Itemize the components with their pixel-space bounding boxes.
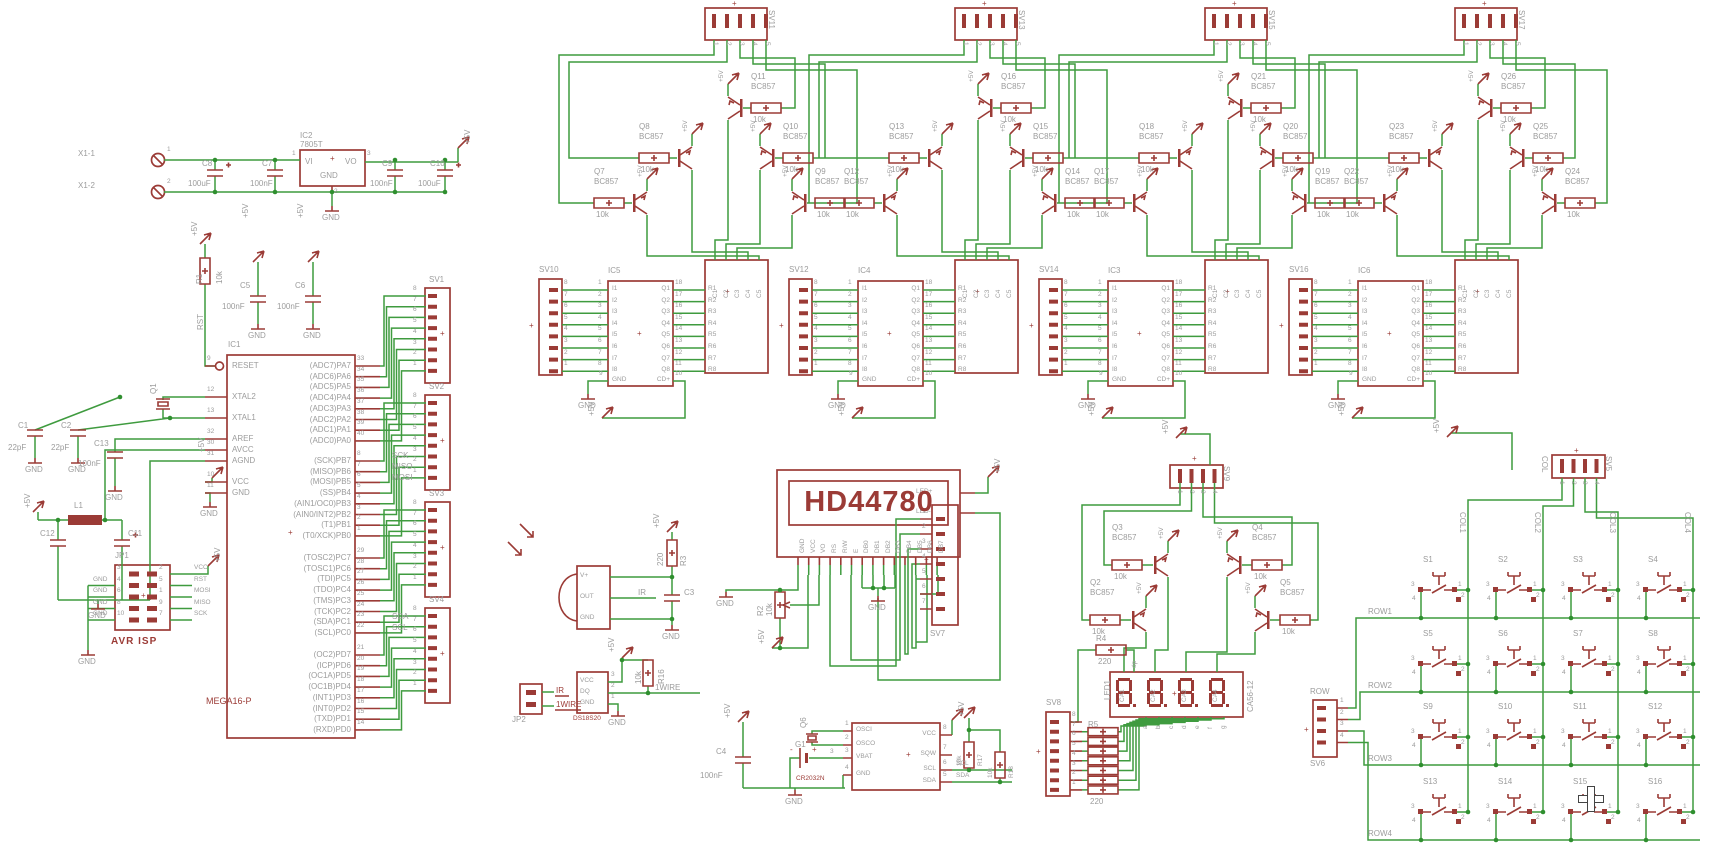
- label: R4: [958, 321, 966, 328]
- label: (TOSC1)PC6: [233, 565, 351, 573]
- label: 100nF: [700, 772, 723, 780]
- label: 10k: [1282, 628, 1295, 636]
- label: DB4: [907, 540, 914, 553]
- label: Q1: [1142, 286, 1170, 293]
- label: Q6: [1392, 344, 1420, 351]
- label: 3: [1561, 582, 1565, 589]
- label: Q5: [892, 332, 920, 339]
- label: 10k: [1317, 211, 1330, 219]
- label: GND: [580, 700, 594, 707]
- label: 4: [413, 436, 417, 443]
- label: BC857: [1280, 589, 1304, 597]
- label: DB7: [939, 540, 946, 553]
- label: 10k: [1114, 573, 1127, 581]
- label: 4: [598, 315, 602, 322]
- label: 3: [845, 748, 849, 755]
- label: 17: [675, 292, 682, 299]
- label: R8: [708, 367, 716, 374]
- label: I3: [612, 309, 617, 316]
- label: 15: [1175, 315, 1182, 322]
- label: GND: [1112, 377, 1126, 384]
- label: GND: [93, 611, 107, 618]
- label: I5: [1362, 332, 1367, 339]
- label: (OC1A)PD5: [233, 672, 351, 680]
- label: R3: [1208, 309, 1216, 316]
- row-net-label: ROW3: [1368, 755, 1392, 763]
- transistor-ref: Q18: [1139, 123, 1154, 131]
- label: 10k: [641, 166, 654, 174]
- label: 3: [1488, 42, 1495, 46]
- transistor-ref: Q24: [1565, 168, 1580, 176]
- label: +5V: [994, 459, 1002, 473]
- label: R3: [680, 556, 688, 566]
- label: 8: [117, 600, 121, 607]
- conn-label: SV3: [429, 490, 444, 498]
- label: BC857: [1252, 534, 1276, 542]
- label: +5V: [1246, 582, 1253, 594]
- label: +5V: [588, 402, 596, 416]
- ic2-value: 7805T: [300, 141, 323, 149]
- label: Q6: [1142, 344, 1170, 351]
- label: 1: [1683, 656, 1687, 663]
- label: 33: [357, 356, 364, 363]
- label: 5: [159, 577, 163, 584]
- label: +5V: [242, 204, 250, 218]
- label: (T0/XCK)PB0: [233, 532, 351, 540]
- label: I6: [612, 344, 617, 351]
- label: 10k: [891, 166, 904, 174]
- label: I8: [612, 367, 617, 374]
- label: MOSI: [392, 474, 412, 482]
- gnd-label: GND: [868, 604, 886, 612]
- label: C8: [202, 160, 212, 168]
- col-net-label: COL2: [1533, 512, 1541, 533]
- label: +5V: [838, 402, 846, 416]
- label: +5V: [214, 548, 222, 562]
- label: Q4: [642, 321, 670, 328]
- label: 4: [1412, 596, 1416, 603]
- ic-ref: IC5: [608, 267, 620, 275]
- label: C5: [1007, 290, 1014, 298]
- label: 100nF: [250, 180, 273, 188]
- label: 14: [357, 720, 364, 727]
- label: Q1: [642, 286, 670, 293]
- row-net-label: ROW4: [1368, 830, 1392, 838]
- label: RS: [832, 544, 839, 553]
- label: R8: [1458, 367, 1466, 374]
- gnd-label: GND: [200, 510, 218, 518]
- switch-ref: S12: [1648, 703, 1662, 711]
- conn-label: SV13: [1017, 10, 1025, 30]
- label: +5V: [724, 704, 732, 718]
- label: 10k: [846, 211, 859, 219]
- mouse-cursor: [1578, 786, 1604, 812]
- label: 1: [1314, 361, 1318, 368]
- label: 3: [1486, 804, 1490, 811]
- transistor-ref: Q19: [1315, 168, 1330, 176]
- label: dp: [1132, 661, 1139, 668]
- label: BC857: [1139, 133, 1163, 141]
- label: 10k: [1067, 211, 1080, 219]
- label: 2: [1611, 815, 1615, 822]
- label: 13: [675, 338, 682, 345]
- label: BC857: [1033, 133, 1057, 141]
- label: 6: [413, 521, 417, 528]
- label: 6: [1064, 303, 1068, 310]
- label: R7: [1208, 356, 1216, 363]
- label: 3: [1561, 804, 1565, 811]
- label: 14: [1175, 326, 1182, 333]
- conn-label: SV7: [930, 630, 945, 638]
- label: 3: [1314, 338, 1318, 345]
- label: 15: [925, 315, 932, 322]
- label: 3: [1561, 656, 1565, 663]
- label: 4: [1487, 670, 1491, 677]
- label: 32: [207, 429, 214, 436]
- label: I2: [1112, 298, 1117, 305]
- label: 2: [1187, 490, 1194, 494]
- label: 5: [413, 318, 417, 325]
- label: 2: [1314, 350, 1318, 357]
- label: 1: [1458, 804, 1462, 811]
- label: 6: [1348, 338, 1352, 345]
- label: 12: [207, 387, 214, 394]
- label: C3: [985, 290, 992, 298]
- label: +: [982, 0, 987, 8]
- label: 26: [357, 580, 364, 587]
- conn-label: SV4: [429, 596, 444, 604]
- label: I1: [862, 286, 867, 293]
- label: 10k: [957, 756, 964, 766]
- label: 4: [1001, 42, 1008, 46]
- label: BC857: [1565, 178, 1589, 186]
- label: 100uF: [188, 180, 211, 188]
- label: 5: [357, 483, 361, 490]
- label: 1: [1608, 729, 1612, 736]
- label: Q4: [1392, 321, 1420, 328]
- label: +5V: [783, 165, 790, 177]
- label: (ADC6)PA6: [233, 373, 351, 381]
- label: 1: [1533, 729, 1537, 736]
- label: (ICP)PD6: [233, 662, 351, 670]
- transistor-ref: Q21: [1251, 73, 1266, 81]
- label: R6: [708, 344, 716, 351]
- label: R4: [708, 321, 716, 328]
- label: DQ: [580, 689, 590, 696]
- label: +5V: [969, 70, 976, 82]
- label: +: [440, 330, 445, 338]
- label: 11: [1175, 361, 1182, 368]
- label: 28: [357, 559, 364, 566]
- label: 4: [1064, 326, 1068, 333]
- label: 18: [925, 280, 932, 287]
- label: +5V: [683, 120, 690, 132]
- label: BC857: [1094, 178, 1118, 186]
- row-group-label: ROW: [1310, 688, 1330, 696]
- label: GND: [93, 600, 107, 607]
- label: 2: [1686, 815, 1690, 822]
- label: VCC: [580, 678, 594, 685]
- label: 7: [1098, 350, 1102, 357]
- label: Q1: [1392, 286, 1420, 293]
- label: 18: [675, 280, 682, 287]
- label: 7: [564, 292, 568, 299]
- label: Q2: [1142, 298, 1170, 305]
- lcd-module-title[interactable]: HD44780: [792, 486, 946, 519]
- label: C4: [746, 290, 753, 298]
- transistor-ref: Q9: [815, 168, 826, 176]
- label: 15: [1425, 315, 1432, 322]
- label: 220: [1090, 798, 1103, 806]
- label: CR2032N: [796, 776, 825, 783]
- label: R4: [1458, 321, 1466, 328]
- label: +5V: [1088, 402, 1096, 416]
- label: 8: [564, 280, 568, 287]
- label: 5: [943, 772, 947, 779]
- label: 10k: [1141, 166, 1154, 174]
- label: 2: [1536, 667, 1540, 674]
- label: 7: [413, 297, 417, 304]
- label: 8: [814, 280, 818, 287]
- label: Q5: [642, 332, 670, 339]
- label: R4: [1096, 635, 1106, 643]
- label: d: [1182, 725, 1189, 729]
- label: SCK: [392, 452, 408, 460]
- gnd-label: GND: [78, 658, 96, 666]
- conn-label: SV15: [1267, 10, 1275, 30]
- label: 2: [1611, 740, 1615, 747]
- label: C5: [240, 282, 250, 290]
- label: MISO: [194, 600, 211, 607]
- label: R2: [1208, 298, 1216, 305]
- label: SCL: [888, 766, 936, 773]
- label: 4: [413, 649, 417, 656]
- label: 17: [925, 292, 932, 299]
- col-net-label: COL1: [1458, 512, 1466, 533]
- label: 10k: [596, 211, 609, 219]
- label: 2: [1686, 740, 1690, 747]
- label: 10: [207, 472, 214, 479]
- label: +: [330, 155, 335, 163]
- label: R6: [958, 344, 966, 351]
- label: 6: [413, 414, 417, 421]
- label: BC857: [1344, 178, 1368, 186]
- label: 2: [1536, 593, 1540, 600]
- label: 31: [207, 451, 214, 458]
- gnd-label: GND: [303, 332, 321, 340]
- label: 2: [1536, 815, 1540, 822]
- label: 14: [675, 326, 682, 333]
- switch-ref: S10: [1498, 703, 1512, 711]
- avr-isp-caption: AVR ISP: [111, 636, 157, 647]
- label: E: [854, 549, 861, 553]
- label: 100nF: [78, 460, 101, 468]
- label: 3: [564, 338, 568, 345]
- label: 1: [1533, 804, 1537, 811]
- schematic-canvas[interactable]: X1-1X1-212C8100uFC7100nFC9100nFC10100uFI…: [0, 0, 1711, 855]
- label: 23: [357, 612, 364, 619]
- label: 1: [611, 694, 615, 701]
- label-layer: X1-1X1-212C8100uFC7100nFC9100nFC10100uFI…: [0, 0, 1711, 855]
- label: 3: [1411, 656, 1415, 663]
- label: +5V: [1283, 165, 1290, 177]
- label: C2: [724, 290, 731, 298]
- label: 10k: [635, 671, 643, 684]
- label: 6: [357, 472, 361, 479]
- label: 4: [922, 554, 926, 561]
- label: 1: [1608, 804, 1612, 811]
- label: 14: [925, 326, 932, 333]
- label: +5V: [1533, 165, 1540, 177]
- label: 1: [1533, 656, 1537, 663]
- label: +: [1387, 330, 1392, 338]
- label: R8: [958, 367, 966, 374]
- label: 3: [848, 303, 852, 310]
- label: C4: [1246, 290, 1253, 298]
- label: C2: [61, 422, 71, 430]
- label: 3: [1411, 729, 1415, 736]
- label: 8: [943, 725, 947, 732]
- label: 4: [1501, 42, 1508, 46]
- label: 3: [1340, 721, 1344, 728]
- label: +: [637, 330, 642, 338]
- transistor-ref: Q13: [889, 123, 904, 131]
- label: 35: [357, 377, 364, 384]
- transistor-ref: Q11: [751, 73, 766, 81]
- label: (SDA)PC1: [233, 618, 351, 626]
- label: 1WIRE: [556, 701, 581, 709]
- label: +: [732, 0, 737, 8]
- label: R6: [1458, 344, 1466, 351]
- label: 1: [292, 151, 296, 158]
- row-net-label: ROW2: [1368, 682, 1392, 690]
- label: I6: [862, 344, 867, 351]
- switch-ref: S9: [1423, 703, 1433, 711]
- label: 8: [848, 361, 852, 368]
- label: +5V: [1218, 527, 1225, 539]
- label: BC857: [1251, 83, 1275, 91]
- label: 4: [1562, 743, 1566, 750]
- label: 12: [675, 350, 682, 357]
- label: 100uF: [418, 180, 441, 188]
- label: I7: [1362, 356, 1367, 363]
- label: 4: [1314, 326, 1318, 333]
- label: CD+: [1142, 377, 1170, 384]
- jp1-ref: JP1: [115, 552, 129, 560]
- label: e: [1195, 725, 1202, 729]
- label: 6: [1072, 731, 1076, 738]
- label: 7: [814, 292, 818, 299]
- label: Q6: [642, 344, 670, 351]
- label: 5: [1014, 42, 1021, 46]
- label: 3: [1199, 490, 1206, 494]
- label: 3: [413, 340, 417, 347]
- label: C5: [1257, 290, 1264, 298]
- transistor-ref: Q15: [1033, 123, 1048, 131]
- label: +5V: [297, 204, 305, 218]
- label: I1: [1362, 286, 1367, 293]
- label: 7: [413, 617, 417, 624]
- label: I2: [1362, 298, 1367, 305]
- label: 8: [1314, 280, 1318, 287]
- label: 1: [1098, 280, 1102, 287]
- label: I7: [1112, 356, 1117, 363]
- label: 13: [925, 338, 932, 345]
- label: 4: [1251, 42, 1258, 46]
- label: +: [1482, 0, 1487, 8]
- label: Q3: [1392, 309, 1420, 316]
- transistor-ref: Q16: [1001, 73, 1016, 81]
- label: RST: [194, 577, 207, 584]
- label: Q1: [892, 286, 920, 293]
- label: 10k: [1254, 573, 1267, 581]
- label: +5V: [191, 222, 199, 236]
- label: 10k: [216, 271, 224, 284]
- label: CD+: [892, 377, 920, 384]
- label: SDA: [956, 773, 969, 780]
- label: +: [1304, 726, 1309, 734]
- label: (TDO)PC4: [233, 586, 351, 594]
- label: 4: [1340, 733, 1344, 740]
- label: 17: [357, 688, 364, 695]
- conn-label: SV9: [1222, 466, 1230, 481]
- label: +5V: [608, 638, 616, 652]
- label: 12: [1425, 350, 1432, 357]
- label: 7: [1072, 722, 1076, 729]
- label: C3: [735, 290, 742, 298]
- switch-ref: S3: [1573, 556, 1583, 564]
- label: 4: [1098, 315, 1102, 322]
- label: 7: [598, 350, 602, 357]
- label: 9: [599, 371, 603, 378]
- label: DB3: [896, 540, 903, 553]
- label: 4: [1487, 818, 1491, 825]
- label: 6: [814, 303, 818, 310]
- label: VBAT: [856, 754, 873, 761]
- label: +: [1279, 322, 1284, 330]
- label: DB2: [886, 540, 893, 553]
- ds18s20-label: DS18S20: [573, 716, 601, 723]
- label: (TOSC2)PC7: [233, 554, 351, 562]
- label: Q2: [892, 298, 920, 305]
- label: 7: [413, 404, 417, 411]
- label: 3: [598, 303, 602, 310]
- label: 12: [1175, 350, 1182, 357]
- label: 1: [413, 361, 417, 368]
- label: Q2: [1392, 298, 1420, 305]
- label: 8: [1064, 280, 1068, 287]
- label: 17: [1175, 292, 1182, 299]
- label: I6: [1362, 344, 1367, 351]
- switch-ref: S6: [1498, 630, 1508, 638]
- label: I8: [862, 367, 867, 374]
- label: 10: [117, 611, 124, 618]
- label: 4: [1562, 670, 1566, 677]
- label: 16: [925, 303, 932, 310]
- label: 8: [357, 451, 361, 458]
- label: +5V: [1183, 120, 1190, 132]
- conn-label: SV17: [1517, 10, 1525, 30]
- label: 8: [1072, 712, 1076, 719]
- label: 2: [845, 735, 849, 742]
- label: 2: [1340, 710, 1344, 717]
- label: 13: [1175, 338, 1182, 345]
- label: +5V: [933, 120, 940, 132]
- gnd-label: GND: [105, 494, 123, 502]
- label: Q7: [892, 356, 920, 363]
- label: f: [1208, 727, 1215, 729]
- label: R2: [958, 298, 966, 305]
